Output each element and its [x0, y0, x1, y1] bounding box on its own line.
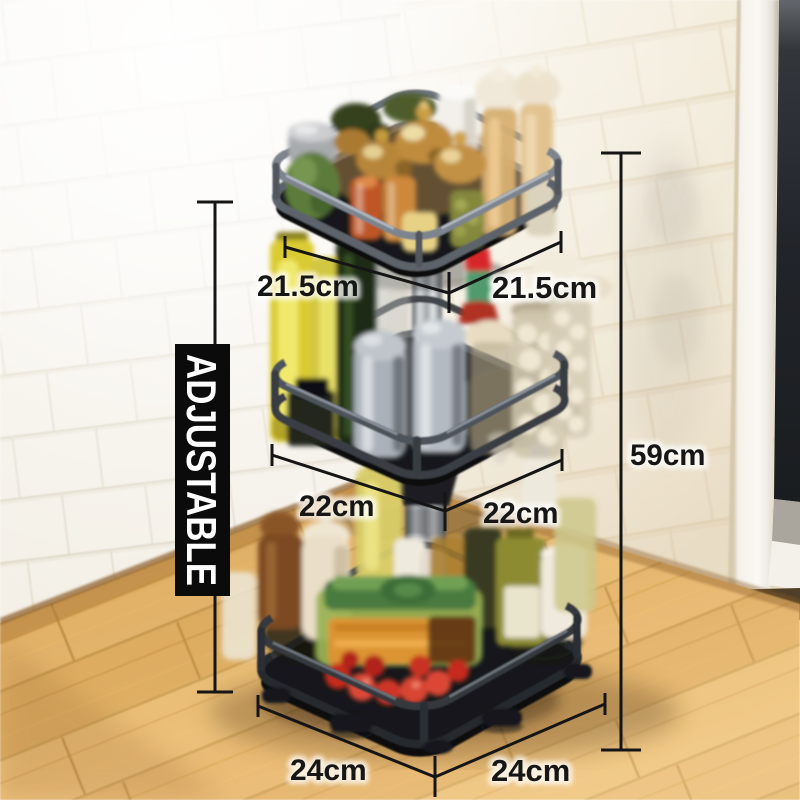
svg-text:21.5cm: 21.5cm: [257, 270, 359, 303]
svg-text:22cm: 22cm: [299, 490, 374, 523]
svg-text:ADJUSTABLE: ADJUSTABLE: [178, 354, 225, 586]
svg-text:21.5cm: 21.5cm: [492, 270, 597, 305]
svg-text:24cm: 24cm: [290, 754, 367, 787]
svg-text:24cm: 24cm: [491, 753, 570, 788]
svg-text:59cm: 59cm: [630, 439, 705, 472]
svg-text:22cm: 22cm: [483, 497, 558, 530]
